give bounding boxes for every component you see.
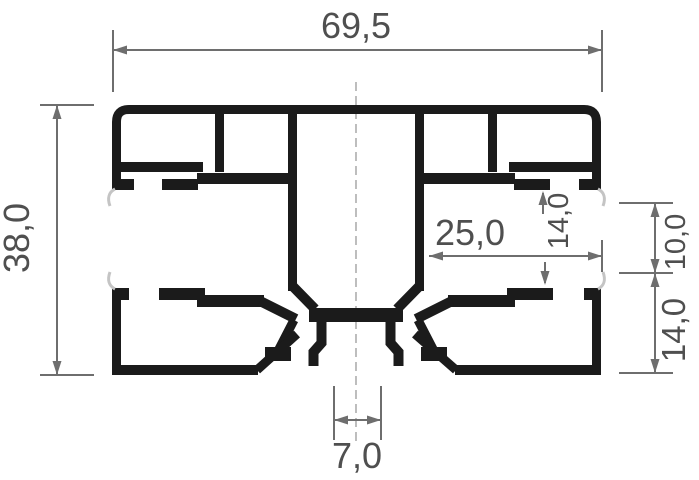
technical-drawing-page: 69,5 38,0 25,0 14,0 10,0 14,0 [0,0,699,480]
arrowhead-up [651,273,660,287]
left-hub-foot [265,347,291,361]
gasket-bottom-left [109,272,115,289]
dim-inset-width-label: 25,0 [435,212,505,253]
dim-bottom-slot: 7,0 [332,386,382,476]
arrowhead-right [367,416,381,425]
dim-groove-gap: 14,0 [539,191,576,285]
profile-cross-section-drawing: 69,5 38,0 25,0 14,0 10,0 14,0 [0,0,699,480]
dim-groove-gap-label: 14,0 [543,193,575,249]
arrowhead-up [651,203,660,217]
right-channel-leg [391,316,399,366]
top-outer-frame [117,110,597,191]
dim-overall-height-label: 38,0 [0,203,37,273]
left-upper-strut [260,301,296,319]
right-hub-foot [421,347,447,361]
dim-overall-width: 69,5 [113,5,602,92]
dim-overall-height: 38,0 [0,105,94,375]
central-left-chamfer [293,286,316,309]
arrowhead-left [113,46,127,55]
gasket-bottom-right [598,272,604,289]
arrowhead-right [588,252,602,261]
left-channel-leg [314,316,322,366]
arrowhead-left [334,416,348,425]
dim-overall-width-label: 69,5 [321,5,391,46]
gasket-top-right [598,189,604,206]
right-upper-strut [416,301,452,319]
gasket-top-left [109,189,115,206]
arrowhead-right [588,46,602,55]
dim-upper-right-gap-label: 10,0 [660,214,692,270]
dim-lower-right-height-label: 14,0 [655,298,692,362]
arrowhead-down [541,271,550,285]
dim-right-stack: 10,0 14,0 [619,203,692,373]
central-right-chamfer [397,286,420,309]
arrowhead-up [53,105,62,119]
dim-bottom-slot-label: 7,0 [332,435,382,476]
dim-inset-width: 25,0 [429,212,602,272]
arrowhead-down [651,259,660,273]
arrowhead-down [53,361,62,375]
